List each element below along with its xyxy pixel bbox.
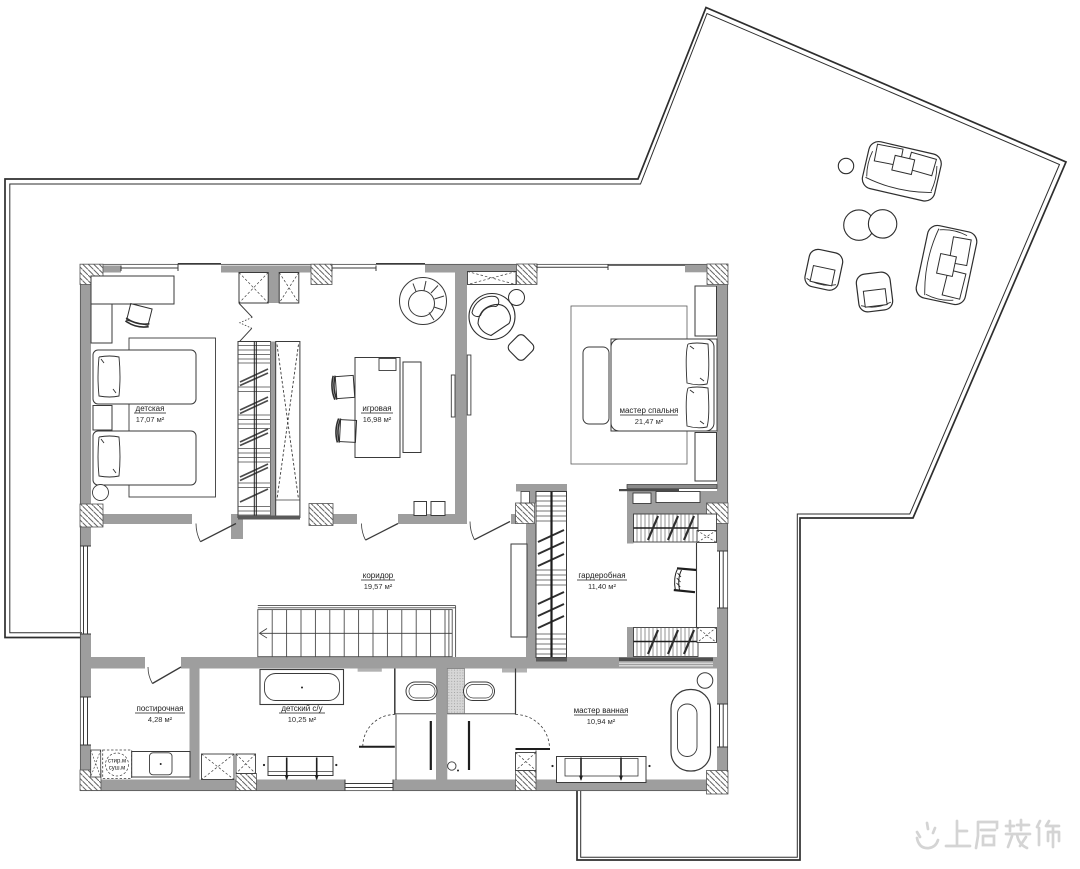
svg-text:10,25 м²: 10,25 м² [288,715,317,724]
svg-text:16,98 м²: 16,98 м² [363,415,392,424]
svg-text:4,28 м²: 4,28 м² [148,715,173,724]
svg-text:стир.м: стир.м [108,759,126,765]
svg-text:постирочная: постирочная [136,704,183,713]
svg-text:детский с/у: детский с/у [281,704,322,713]
svg-text:игровая: игровая [362,404,391,413]
svg-text:17,07 м²: 17,07 м² [136,415,165,424]
svg-text:гардеробная: гардеробная [578,571,625,580]
svg-text:21,47 м²: 21,47 м² [635,417,664,426]
svg-text:мастер ванная: мастер ванная [574,706,629,715]
svg-text:мастер спальня: мастер спальня [619,406,678,415]
svg-text:суш.м: суш.м [109,766,126,772]
svg-text:коридор: коридор [363,571,394,580]
svg-text:10,94 м²: 10,94 м² [587,717,616,726]
svg-text:11,40 м²: 11,40 м² [588,582,616,591]
svg-text:19,57 м²: 19,57 м² [364,582,393,591]
svg-text:детская: детская [136,404,165,413]
